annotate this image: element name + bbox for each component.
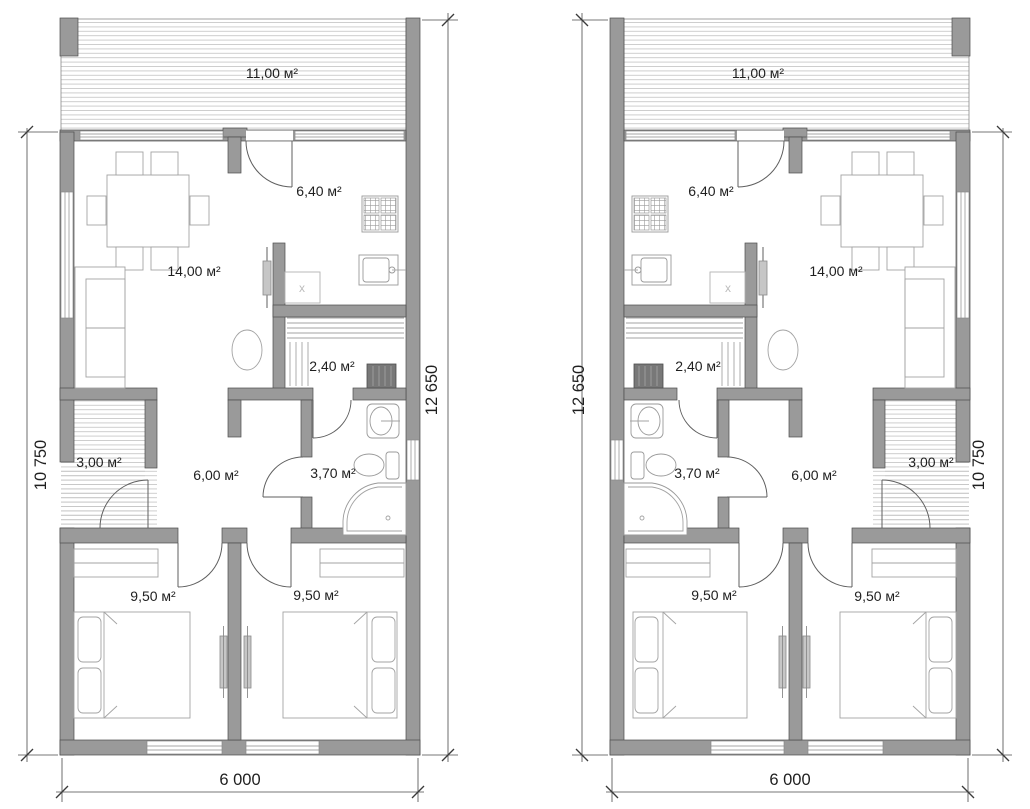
plan-left-graphics: [18, 13, 458, 802]
room-label-bedroom-right: 9,50 м²: [854, 588, 900, 604]
room-label-hall: 6,00 м²: [791, 467, 837, 483]
appliance-mark: x: [299, 281, 305, 295]
dimension-bottom: 6 000: [769, 771, 810, 789]
room-label-entry: 3,00 м²: [76, 454, 122, 470]
floor-plan-canvas: 11,00 м² 6,40 м² 14,00 м² 2,40 м² x 3,00…: [0, 0, 1030, 809]
dimension-right: 12 650: [423, 365, 441, 415]
room-label-terrace: 11,00 м²: [732, 65, 785, 81]
appliance-mark: x: [725, 281, 731, 295]
room-label-kitchen: 6,40 м²: [296, 183, 342, 199]
floor-plan-sheet: 11,00 м² 6,40 м² 14,00 м² 2,40 м² x 3,00…: [0, 0, 1030, 809]
room-label-bathroom: 3,70 м²: [310, 465, 356, 481]
room-label-bathroom: 3,70 м²: [674, 465, 720, 481]
room-label-bedroom-right: 9,50 м²: [293, 587, 339, 603]
dimension-right: 10 750: [970, 440, 988, 490]
room-label-hall: 6,00 м²: [193, 467, 239, 483]
dimension-bottom: 6 000: [219, 771, 260, 789]
room-label-bedroom-left: 9,50 м²: [130, 588, 176, 604]
plan-right-graphics: [572, 13, 1012, 802]
room-label-sauna: 2,40 м²: [675, 358, 721, 374]
room-label-terrace: 11,00 м²: [246, 65, 299, 81]
room-label-living-room: 14,00 м²: [167, 263, 221, 279]
room-label-kitchen: 6,40 м²: [688, 183, 734, 199]
room-label-living-room: 14,00 м²: [809, 263, 863, 279]
room-label-entry: 3,00 м²: [908, 454, 954, 470]
room-label-sauna: 2,40 м²: [309, 358, 355, 374]
dimension-left: 10 750: [32, 440, 50, 490]
room-label-bedroom-left: 9,50 м²: [691, 587, 737, 603]
dimension-left: 12 650: [570, 365, 588, 415]
